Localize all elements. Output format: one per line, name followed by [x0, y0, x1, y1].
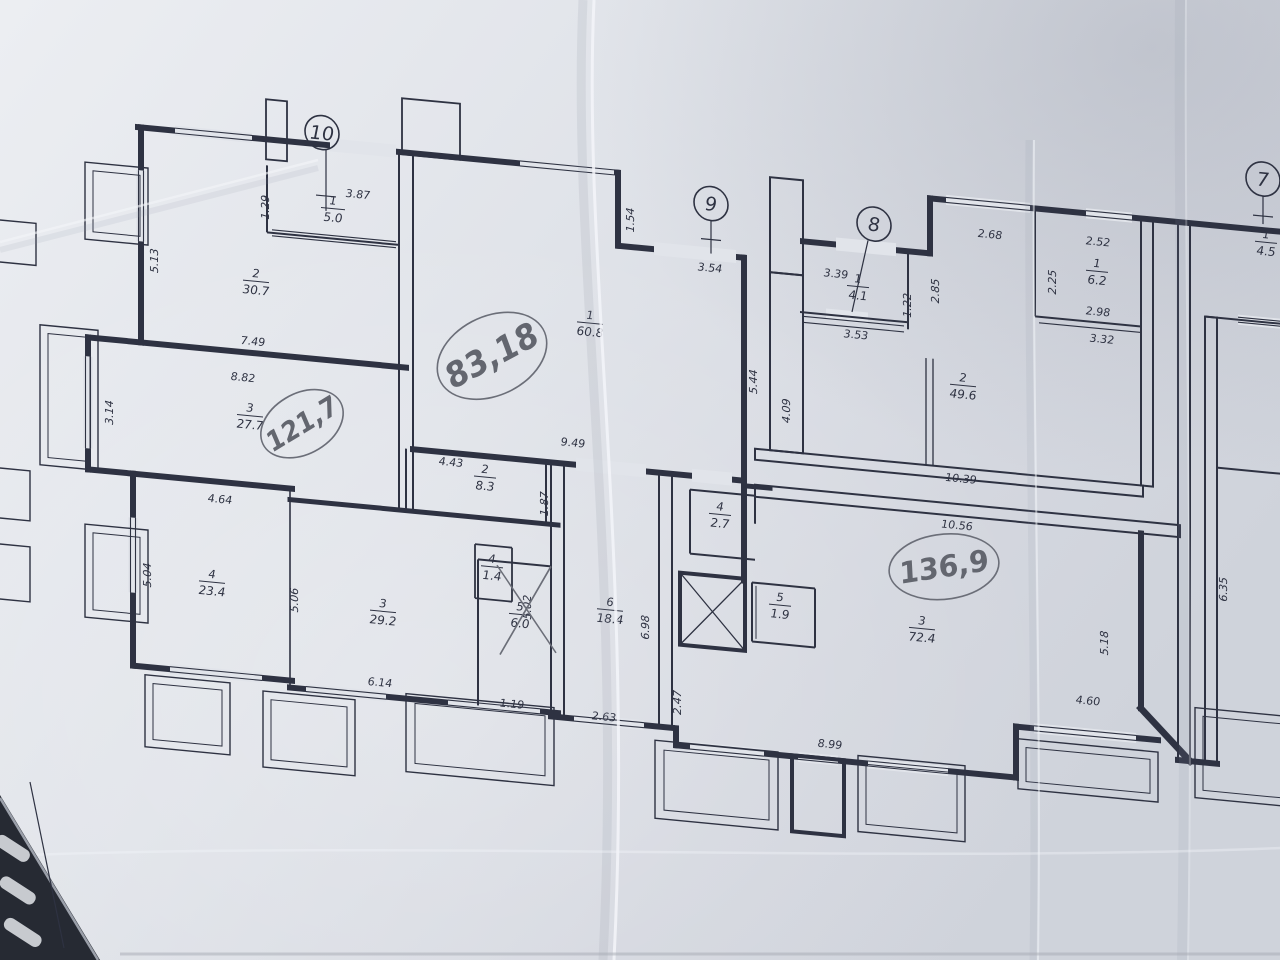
- dim-label: 5.18: [1098, 630, 1111, 656]
- room-number: 3: [918, 613, 925, 628]
- room-area: 4.5: [1256, 243, 1275, 259]
- dim-label: 7.49: [241, 334, 265, 349]
- dim-label: 3.14: [103, 400, 116, 426]
- room-number: 1: [1093, 256, 1100, 271]
- room-area: 72.4: [909, 629, 936, 646]
- room-area: 8.3: [475, 478, 494, 494]
- room-area: 49.6: [950, 386, 977, 403]
- dim-label: 8.82: [231, 370, 255, 385]
- room-number: 4: [208, 567, 215, 582]
- room-number: 5: [776, 590, 783, 605]
- dim-label: 1.29: [259, 194, 272, 220]
- apartment-number: 8: [868, 214, 880, 237]
- dim-label: 2.98: [1086, 304, 1110, 319]
- room-area: 1.9: [770, 606, 789, 622]
- dim-label: 2.47: [671, 690, 684, 716]
- dim-label: 4.09: [780, 398, 793, 424]
- floor-plan-photo: 10 9 8 7 15.0 230.7 327.7 423.4 329.2 28…: [0, 0, 1280, 960]
- floor-plan-drawing: 10 9 8 7 15.0 230.7 327.7 423.4 329.2 28…: [0, 0, 1280, 960]
- dim-label: 2.85: [929, 278, 942, 304]
- dim-label: 6.35: [1217, 576, 1230, 602]
- dim-label: 3.53: [844, 327, 868, 342]
- dim-label: 3.87: [346, 187, 370, 202]
- apartment-number: 9: [705, 193, 717, 216]
- dim-label: 2.25: [1046, 269, 1059, 295]
- room-number: 4: [488, 551, 495, 566]
- room-number: 2: [481, 462, 488, 477]
- dim-label: 4.64: [208, 492, 232, 507]
- dim-label: 6.14: [368, 675, 392, 690]
- dim-label: 5.44: [747, 369, 760, 395]
- dim-label: 3.39: [824, 266, 848, 281]
- room-area: 23.4: [199, 583, 226, 600]
- room-area: 5.0: [323, 210, 342, 226]
- room-number: 1: [1262, 227, 1269, 242]
- dim-label: 1.19: [500, 697, 524, 712]
- dim-label: 1.54: [624, 207, 637, 233]
- dim-label: 2.68: [978, 227, 1002, 242]
- room-number: 2: [252, 266, 259, 281]
- dim-label: 1.22: [901, 292, 914, 318]
- dim-label: 3.32: [1090, 332, 1114, 347]
- apartment-number: 7: [1257, 169, 1269, 192]
- room-number: 1: [329, 193, 336, 208]
- room-area: 6.2: [1087, 272, 1106, 288]
- room-area: 29.2: [370, 612, 397, 629]
- dim-label: 3.54: [698, 260, 722, 275]
- room-number: 3: [379, 596, 386, 611]
- apartment-number: 10: [310, 121, 334, 145]
- room-area: 2.7: [710, 516, 729, 532]
- dim-label: 9.49: [561, 435, 585, 450]
- dim-label: 4.60: [1076, 693, 1100, 708]
- dim-label: 4.43: [439, 455, 463, 470]
- room-number: 3: [246, 400, 253, 415]
- dim-label: 2.52: [1086, 234, 1110, 249]
- dim-label: 5.13: [148, 248, 161, 274]
- dim-label: 6.98: [639, 615, 652, 641]
- dim-label: 5.04: [141, 562, 154, 588]
- room-number: 1: [854, 271, 861, 286]
- room-area: 27.7: [237, 417, 264, 434]
- room-area: 1.4: [482, 568, 501, 584]
- room-area: 4.1: [848, 288, 867, 304]
- room-area: 30.7: [243, 282, 270, 299]
- room-number: 2: [959, 370, 966, 385]
- room-number: 4: [716, 499, 723, 514]
- dim-label: 8.99: [818, 737, 842, 752]
- dim-label: 1.87: [538, 491, 551, 517]
- dim-label: 5.06: [288, 587, 301, 613]
